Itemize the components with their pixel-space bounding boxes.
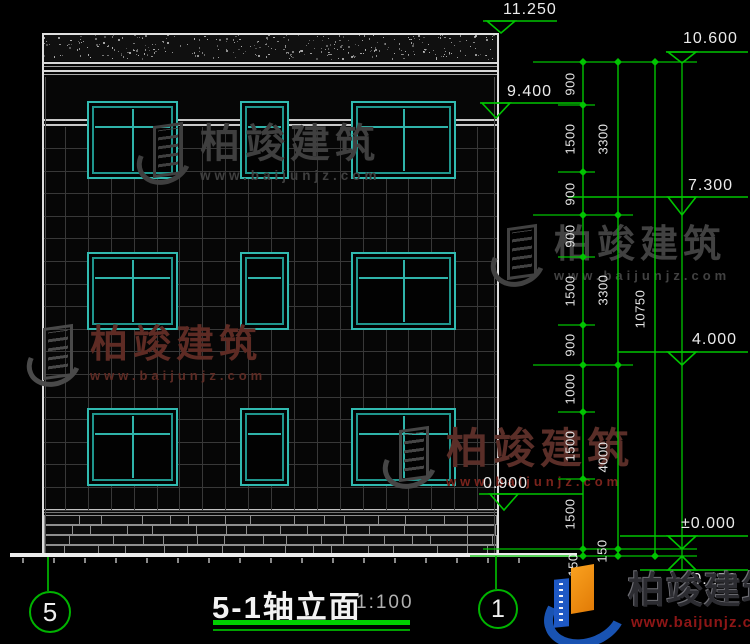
- speckle: [460, 50, 461, 52]
- watermark-url: www.baijunjz.com: [554, 268, 730, 283]
- speckle: [371, 47, 372, 48]
- speckle: [218, 49, 219, 50]
- speckle: [443, 56, 444, 57]
- stone: [467, 525, 496, 535]
- speckle: [238, 49, 240, 50]
- stone: [405, 515, 445, 525]
- speckle: [331, 59, 332, 60]
- speckle: [136, 54, 137, 55]
- speckle: [329, 52, 330, 53]
- speckle: [412, 45, 414, 47]
- speckle: [108, 45, 109, 47]
- speckle: [451, 53, 452, 54]
- speckle: [490, 49, 491, 50]
- watermark-brand: 柏竣建筑: [554, 226, 730, 264]
- stone: [467, 515, 497, 525]
- speckle: [438, 37, 439, 38]
- speckle: [238, 35, 239, 36]
- speckle: [239, 39, 241, 40]
- speckle: [199, 47, 200, 49]
- speckle: [138, 55, 139, 56]
- window-inner-frame: [245, 106, 284, 174]
- speckle: [80, 36, 82, 37]
- speckle: [245, 51, 246, 52]
- speckle: [122, 37, 123, 39]
- dimension-value: 1000: [563, 373, 578, 404]
- speckle: [77, 49, 78, 51]
- grid-line: [294, 127, 295, 510]
- grid-line: [44, 238, 497, 239]
- speckle: [155, 51, 157, 52]
- stone: [324, 515, 345, 525]
- speckle: [410, 39, 412, 40]
- speckle: [218, 57, 219, 58]
- speckle: [69, 47, 71, 49]
- speckle: [340, 46, 342, 48]
- speckle: [428, 44, 429, 45]
- speckle: [60, 55, 61, 56]
- speckle: [348, 46, 350, 48]
- facade-line: [42, 70, 499, 72]
- speckle: [310, 53, 312, 54]
- dimension-value: 1500: [563, 430, 578, 461]
- dimension-value: 900: [563, 333, 578, 356]
- speckle: [271, 48, 272, 49]
- stone: [113, 535, 144, 545]
- speckle: [104, 36, 106, 38]
- speckle: [414, 38, 415, 39]
- stone: [44, 535, 70, 545]
- grid-line: [225, 127, 226, 510]
- speckle: [199, 51, 200, 52]
- speckle: [457, 57, 458, 58]
- stone: [263, 535, 287, 545]
- speckle: [59, 44, 61, 45]
- stone: [430, 535, 468, 545]
- speckle: [291, 54, 292, 55]
- speckle: [376, 56, 377, 57]
- speckle: [321, 48, 322, 49]
- speckle: [226, 41, 227, 42]
- speckle: [474, 36, 476, 38]
- stone: [369, 525, 405, 535]
- speckle: [375, 49, 377, 51]
- speckle: [54, 56, 55, 58]
- grid-line: [44, 193, 497, 194]
- speckle: [304, 54, 305, 55]
- speckle: [213, 57, 214, 59]
- speckle: [394, 39, 395, 40]
- axis-bubble-1-label: 1: [491, 595, 505, 624]
- speckle: [187, 44, 188, 45]
- stone: [294, 515, 325, 525]
- dimension-value: 1500: [563, 123, 578, 154]
- drawing-scale: 1:100: [356, 592, 414, 614]
- speckle: [358, 45, 359, 46]
- speckle: [475, 54, 477, 56]
- dimension-value: 150: [595, 539, 610, 562]
- ground-line: [10, 553, 577, 557]
- speckle: [339, 35, 340, 37]
- speckle: [219, 39, 221, 41]
- speckle: [475, 48, 476, 49]
- speckle: [174, 36, 175, 37]
- speckle: [493, 35, 495, 36]
- stone: [344, 515, 379, 525]
- stone: [196, 525, 227, 535]
- window: [240, 101, 289, 179]
- stone: [343, 535, 385, 545]
- speckle: [408, 37, 409, 38]
- building-elevation: [42, 33, 499, 554]
- speckle: [306, 45, 307, 46]
- ground-hatch: [425, 558, 427, 563]
- level-value: 9.400: [507, 83, 552, 101]
- speckle: [444, 54, 445, 55]
- stone: [72, 525, 91, 535]
- speckle: [255, 48, 257, 49]
- parapet-hatch: [43, 34, 498, 61]
- dimension-value: 3300: [596, 275, 611, 306]
- speckle: [233, 39, 234, 41]
- speckle: [234, 42, 235, 43]
- speckle: [351, 56, 353, 58]
- speckle: [107, 46, 108, 47]
- speckle: [153, 49, 155, 50]
- speckle: [277, 41, 279, 42]
- speckle: [237, 41, 238, 42]
- cad-elevation-drawing: 5 1 5-1轴立面 1:100 柏竣建筑 www.baijunjz.com 9…: [0, 0, 750, 644]
- speckle: [401, 54, 403, 55]
- grid-line: [44, 510, 497, 511]
- speckle: [372, 56, 373, 58]
- speckle: [292, 57, 294, 58]
- title-underline-thick: [213, 620, 410, 625]
- speckle: [328, 38, 329, 39]
- speckle: [325, 49, 326, 50]
- grid-line: [44, 351, 497, 352]
- stone: [225, 515, 251, 525]
- speckle: [301, 50, 303, 52]
- speckle: [413, 51, 414, 52]
- window-mullion: [403, 109, 405, 171]
- speckle: [154, 52, 155, 54]
- speckle: [194, 38, 195, 40]
- speckle: [449, 54, 450, 55]
- stone: [250, 515, 295, 525]
- speckle: [454, 45, 455, 46]
- facade-line: [42, 33, 499, 35]
- speckle: [129, 52, 131, 54]
- speckle: [470, 46, 471, 47]
- speckle: [285, 46, 286, 48]
- speckle: [139, 37, 140, 38]
- speckle: [338, 58, 339, 59]
- speckle: [322, 40, 323, 41]
- brand-url: www.baijunjz.com: [631, 614, 750, 631]
- speckle: [88, 54, 89, 56]
- speckle: [485, 55, 487, 56]
- window: [87, 101, 178, 179]
- window-mullion: [248, 433, 281, 435]
- ground-hatch: [456, 558, 458, 563]
- speckle: [444, 37, 446, 38]
- speckle: [195, 55, 196, 57]
- speckle: [273, 37, 275, 38]
- level-value: 4.000: [692, 331, 737, 349]
- stone: [384, 535, 413, 545]
- speckle: [334, 44, 335, 45]
- watermark-text: 柏竣建筑www.baijunjz.com: [554, 226, 730, 283]
- ground-hatch: [53, 558, 55, 563]
- stone: [163, 535, 198, 545]
- brand-name: 柏竣建筑: [628, 572, 750, 609]
- speckle: [133, 43, 135, 44]
- speckle: [314, 48, 315, 49]
- watermark-logo-icon: [494, 226, 544, 284]
- speckle: [445, 51, 446, 52]
- speckle: [67, 45, 68, 46]
- ground-hatch: [518, 558, 520, 563]
- speckle: [267, 39, 268, 40]
- speckle: [112, 58, 113, 59]
- ground-hatch: [270, 558, 272, 563]
- speckle: [266, 56, 267, 58]
- level-value: 11.250: [503, 1, 557, 19]
- speckle: [385, 43, 386, 45]
- speckle: [342, 58, 344, 60]
- speckle: [348, 52, 349, 53]
- speckle: [383, 37, 384, 38]
- speckle: [149, 50, 150, 51]
- dimension-value: 900: [563, 182, 578, 205]
- speckle: [436, 58, 437, 60]
- speckle: [328, 48, 329, 50]
- speckle: [313, 40, 314, 41]
- speckle: [339, 40, 341, 41]
- speckle: [354, 57, 355, 58]
- grid-line: [65, 127, 66, 510]
- speckle: [392, 58, 393, 60]
- speckle: [337, 49, 338, 50]
- speckle: [492, 36, 493, 37]
- stone: [224, 535, 264, 545]
- window-mullion: [132, 260, 134, 322]
- dimension-value: 900: [563, 224, 578, 247]
- speckle: [480, 54, 481, 55]
- speckle: [68, 44, 70, 45]
- grid-line: [317, 127, 318, 510]
- speckle: [127, 58, 128, 59]
- window: [240, 252, 289, 330]
- speckle: [343, 36, 344, 38]
- speckle: [167, 42, 169, 44]
- speckle: [95, 35, 96, 36]
- speckle: [369, 38, 370, 40]
- stone: [226, 525, 247, 535]
- speckle: [226, 49, 227, 50]
- speckle: [377, 42, 378, 43]
- window: [87, 408, 178, 486]
- speckle: [288, 39, 289, 41]
- speckle: [364, 35, 365, 37]
- speckle: [144, 53, 145, 55]
- speckle: [492, 58, 493, 59]
- speckle: [233, 52, 234, 53]
- speckle: [226, 50, 228, 52]
- speckle: [118, 39, 120, 41]
- speckle: [370, 51, 371, 52]
- speckle: [95, 38, 97, 40]
- speckle: [256, 55, 257, 56]
- stone: [170, 515, 189, 525]
- speckle: [121, 55, 122, 56]
- window-mullion: [248, 277, 281, 279]
- speckle: [275, 49, 276, 50]
- stone: [426, 525, 468, 535]
- grid-line: [44, 487, 497, 488]
- speckle: [226, 38, 228, 40]
- speckle: [80, 39, 81, 40]
- speckle: [401, 50, 402, 51]
- speckle: [374, 50, 375, 52]
- speckle: [97, 46, 99, 47]
- window-mullion: [248, 126, 281, 128]
- speckle: [166, 38, 167, 39]
- facade-line: [42, 66, 499, 67]
- speckle: [133, 50, 135, 51]
- speckle: [446, 56, 447, 57]
- dimension-value: 4000: [596, 442, 611, 473]
- speckle: [180, 45, 181, 47]
- speckle: [216, 39, 217, 40]
- speckle: [449, 38, 451, 39]
- window-mullion: [132, 416, 134, 478]
- dimension-value: 3300: [596, 123, 611, 154]
- speckle: [326, 45, 328, 47]
- speckle: [79, 48, 80, 50]
- speckle: [199, 39, 200, 41]
- window: [351, 408, 456, 486]
- watermark: 柏竣建筑www.baijunjz.com: [494, 226, 730, 284]
- stone: [197, 535, 225, 545]
- speckle: [112, 36, 113, 38]
- title-underline-thin: [213, 629, 410, 631]
- speckle: [99, 44, 100, 45]
- speckle: [399, 43, 400, 45]
- grid-line: [477, 127, 478, 510]
- speckle: [436, 57, 437, 58]
- window: [240, 408, 289, 486]
- speckle: [451, 42, 452, 43]
- speckle: [440, 37, 441, 39]
- speckle: [362, 40, 363, 41]
- level-value: ±0.000: [681, 515, 736, 533]
- speckle: [330, 44, 331, 46]
- speckle: [204, 36, 206, 37]
- dimension-value: 900: [563, 72, 578, 95]
- speckle: [258, 55, 260, 57]
- grid-line: [44, 216, 497, 217]
- speckle: [429, 52, 430, 53]
- speckle: [343, 49, 344, 50]
- speckle: [360, 53, 362, 54]
- ground-hatch: [487, 558, 489, 563]
- speckle: [283, 49, 285, 50]
- speckle: [118, 51, 119, 52]
- speckle: [308, 43, 309, 44]
- ground-hatch: [239, 558, 241, 563]
- speckle: [126, 48, 127, 49]
- ground-hatch: [394, 558, 396, 563]
- speckle: [192, 53, 193, 54]
- speckle: [235, 36, 237, 37]
- speckle: [46, 41, 47, 42]
- grid-line: [340, 127, 341, 510]
- dimension-value: 10750: [633, 290, 648, 329]
- facade-line: [42, 33, 44, 554]
- ground-hatch: [146, 558, 148, 563]
- window: [351, 252, 456, 330]
- speckle: [388, 47, 389, 48]
- speckle: [286, 53, 287, 54]
- speckle: [348, 53, 349, 54]
- speckle: [403, 58, 405, 59]
- speckle: [241, 46, 242, 47]
- ground-hatch: [22, 558, 24, 563]
- level-value: 0.900: [483, 475, 528, 493]
- window-mullion: [132, 109, 134, 171]
- speckle: [335, 41, 336, 43]
- stone: [378, 515, 406, 525]
- speckle: [250, 46, 251, 47]
- speckle: [62, 55, 63, 56]
- speckle: [107, 55, 109, 56]
- speckle: [114, 49, 115, 51]
- axis-bubble-1: 1: [478, 589, 518, 629]
- speckle: [80, 55, 81, 57]
- speckle: [355, 44, 356, 45]
- speckle: [309, 40, 310, 41]
- speckle: [83, 41, 84, 42]
- speckle: [194, 52, 195, 54]
- stone: [246, 525, 281, 535]
- speckle: [300, 50, 301, 52]
- speckle: [473, 42, 475, 43]
- speckle: [422, 42, 423, 43]
- speckle: [405, 51, 406, 52]
- speckle: [426, 49, 427, 50]
- speckle: [465, 55, 466, 56]
- speckle: [79, 42, 80, 43]
- speckle: [235, 57, 236, 58]
- speckle: [137, 49, 138, 50]
- speckle: [152, 44, 153, 45]
- speckle: [151, 56, 153, 57]
- speckle: [158, 49, 159, 50]
- speckle: [298, 35, 299, 36]
- speckle: [419, 39, 420, 40]
- window: [351, 101, 456, 179]
- speckle: [288, 52, 289, 54]
- speckle: [492, 39, 493, 40]
- ground-hatch: [301, 558, 303, 563]
- speckle: [444, 48, 445, 49]
- speckle: [148, 47, 149, 48]
- stone: [127, 525, 153, 535]
- speckle: [142, 58, 143, 60]
- speckle: [359, 35, 360, 36]
